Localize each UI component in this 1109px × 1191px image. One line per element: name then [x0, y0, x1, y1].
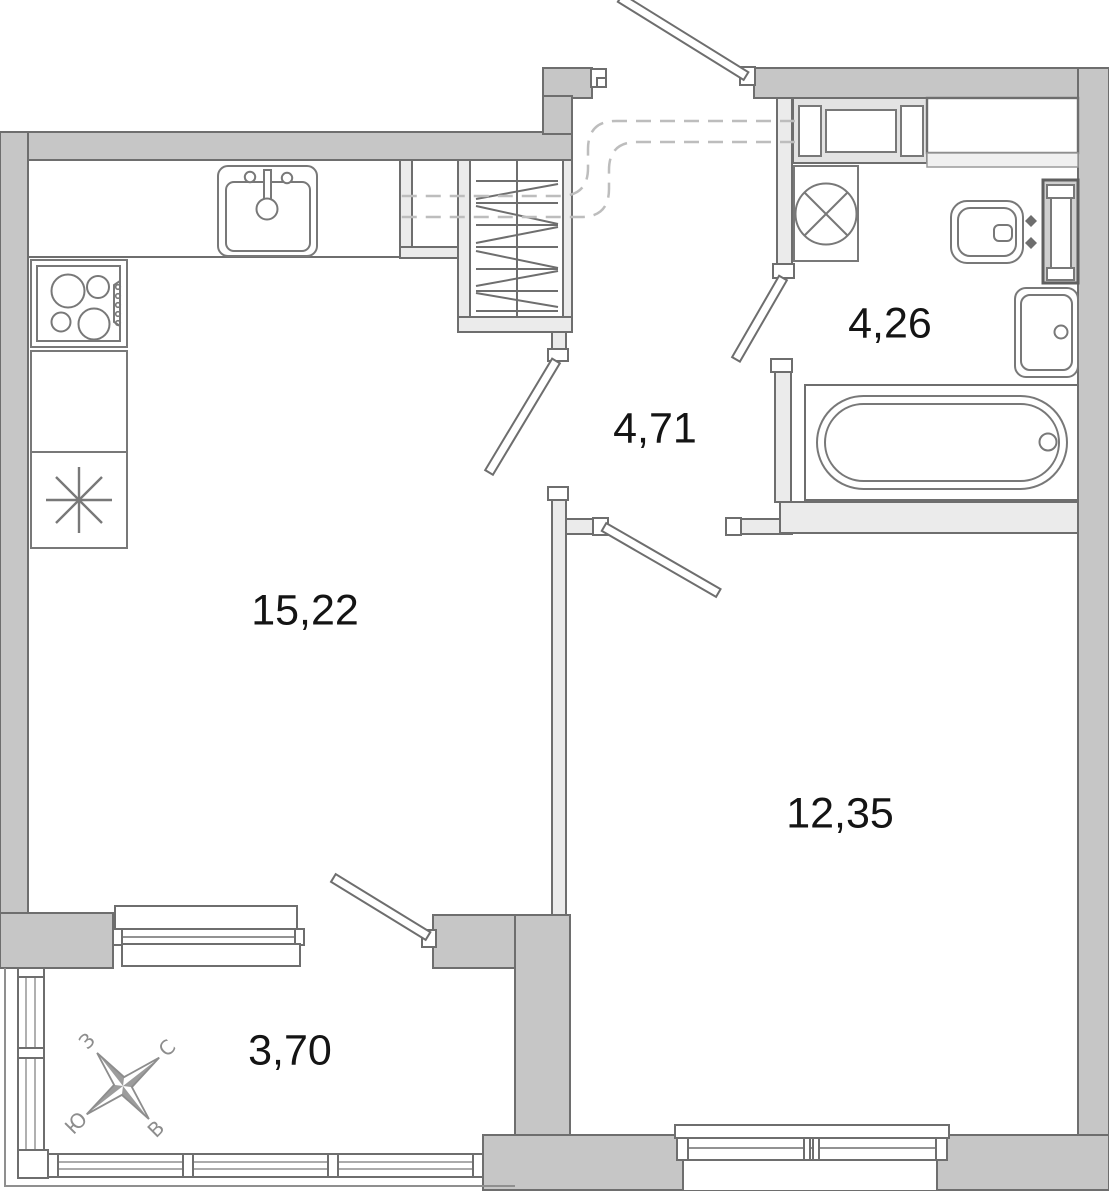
compass-north-label: С: [154, 1035, 181, 1062]
balcony-glazing-left: [18, 968, 44, 1152]
balcony-window-sill-inner: [115, 906, 297, 930]
bathroom-shelf: [927, 98, 1078, 167]
jamb-bath-door-top: [773, 264, 794, 278]
toilet: [951, 201, 1037, 263]
faucet-head: [257, 199, 278, 220]
bathroom-sink: [1015, 288, 1078, 377]
wall-step-block-2: [543, 96, 572, 134]
wall-top-right: [754, 68, 1109, 98]
jamb-living-door-bottom: [548, 487, 568, 500]
toilet-bolt-top: [1025, 215, 1037, 227]
bathtub-drain: [1040, 434, 1057, 451]
balcony-corner-post: [18, 1150, 48, 1178]
compass-south-label: Ю: [60, 1107, 92, 1139]
wall-balcony-top-left: [0, 913, 113, 968]
hall-bath-wall-upper: [777, 98, 792, 266]
balcony-window-sill-outer: [122, 944, 300, 966]
faucet-stem: [264, 170, 271, 202]
fridge: [31, 452, 127, 548]
room-label-hallway: 4,71: [613, 404, 697, 452]
entrance-vent-notch-step: [597, 78, 606, 87]
balcony-door: [331, 874, 430, 940]
vent-shaft: [793, 98, 927, 163]
hall-bath-wall-lower: [775, 372, 791, 502]
bedroom-window-sill-inner: [675, 1125, 949, 1138]
sink-drain: [1055, 326, 1068, 339]
room-label-kitchen-living: 15,22: [251, 586, 359, 634]
compass-east-label: В: [143, 1116, 170, 1143]
bedroom-door: [602, 523, 721, 597]
wardrobe-left-wall: [458, 160, 470, 332]
stove: [31, 260, 127, 347]
bathroom-door: [732, 276, 787, 362]
room-label-bathroom: 4,26: [848, 299, 932, 347]
wardrobe: [470, 160, 563, 317]
toilet-flush: [994, 225, 1012, 241]
bathroom-bottom-wall: [780, 502, 1078, 533]
bedroom-window-sill-outer: [683, 1160, 937, 1191]
kitchen-sink: [218, 166, 317, 256]
wall-left: [0, 132, 28, 968]
wall-top-left: [0, 132, 572, 160]
kitchen-cabinet: [31, 351, 127, 452]
jamb-bedroom-door-right: [726, 518, 741, 535]
towel-radiator: [1043, 180, 1078, 283]
balcony-glazing: [5, 968, 515, 1186]
room-label-bedroom: 12,35: [786, 789, 894, 837]
bedroom-window-mullion: [804, 1138, 810, 1160]
wall-right: [1078, 68, 1109, 1190]
bedroom-window: [675, 1125, 949, 1191]
faucet-handle-left: [245, 172, 255, 182]
floor-plan-page: 15,22 4,71 4,26 12,35 3,70 С В Ю З: [0, 0, 1109, 1191]
living-room-door: [485, 359, 560, 475]
entrance-door: [618, 0, 749, 80]
vent-niche: [412, 160, 458, 247]
faucet-handle-right: [282, 173, 292, 183]
jamb-bath-door-bottom: [771, 359, 792, 372]
wardrobe-right-wall: [563, 160, 572, 317]
floor-plan: 15,22 4,71 4,26 12,35 3,70 С В Ю З: [0, 0, 1109, 1191]
wardrobe-bottom-wall: [458, 317, 572, 332]
balcony-glazing-bottom: [48, 1154, 483, 1177]
niche-left-wall: [400, 160, 412, 258]
compass-west-label: З: [74, 1028, 100, 1054]
compass-rose: С В Ю З: [60, 1028, 181, 1142]
living-bedroom-partition: [552, 500, 566, 915]
washing-machine: [794, 166, 858, 261]
toilet-bolt-bottom: [1025, 237, 1037, 249]
bathtub: [805, 385, 1078, 500]
room-label-balcony: 3,70: [248, 1026, 332, 1074]
balcony-window: [113, 906, 304, 966]
wall-step-block: [543, 68, 592, 98]
